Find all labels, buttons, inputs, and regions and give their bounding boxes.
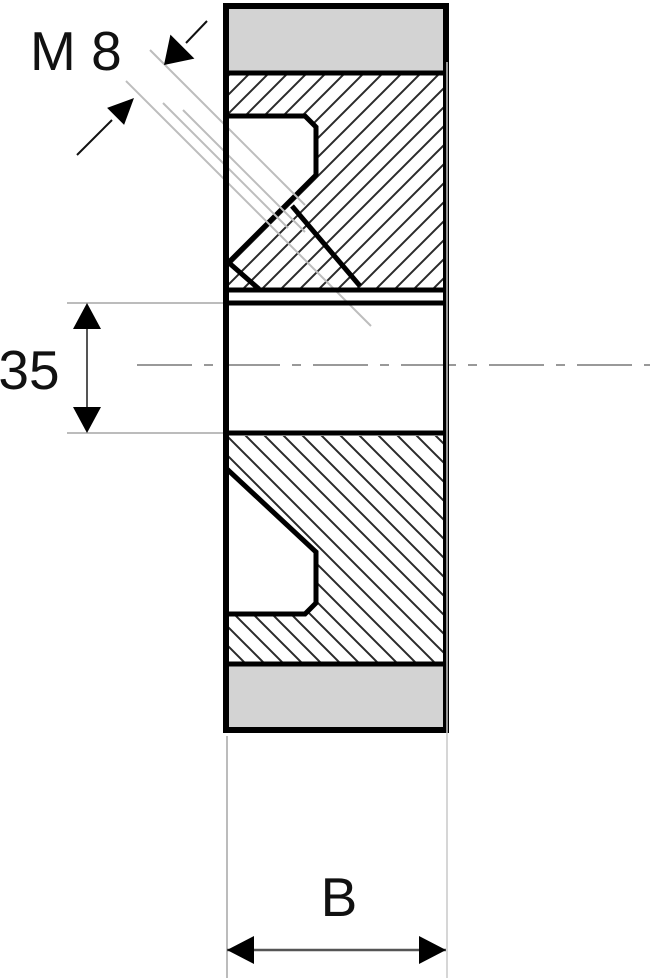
bore-dimension: 35: [0, 303, 223, 433]
thread-leader-line-1: [186, 21, 207, 43]
bottom-rim-face-band: [226, 664, 446, 730]
thread-leader-line-2: [77, 120, 112, 155]
width-arrow-right-icon: [419, 936, 446, 964]
thread-label: M 8: [30, 20, 122, 82]
dim35-arrow-up-icon: [73, 303, 101, 329]
drawing-canvas: M 8 35 B: [0, 0, 650, 978]
width-label: B: [321, 866, 358, 928]
dim35-arrow-down-icon: [73, 407, 101, 433]
section-drawing: M 8 35 B: [0, 0, 650, 978]
top-rim-face-band: [226, 6, 446, 73]
bore-diameter-label: 35: [0, 339, 60, 401]
width-arrow-left-icon: [227, 936, 254, 964]
